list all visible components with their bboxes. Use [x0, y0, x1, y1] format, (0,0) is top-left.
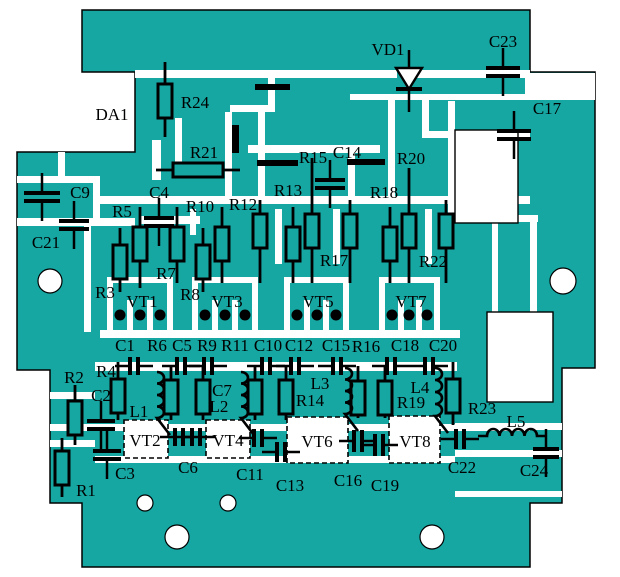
trace-channel [422, 94, 530, 100]
trace-channel [167, 283, 173, 330]
capacitor-symbol [331, 357, 335, 375]
resistor-symbol [55, 451, 69, 485]
capacitor-symbol [93, 449, 121, 453]
mounting-hole [420, 525, 444, 549]
label-L2: L2 [210, 397, 229, 416]
label-R14: R14 [296, 391, 325, 410]
resistor-symbol [279, 380, 293, 414]
capacitor-symbol [87, 419, 115, 423]
resistor-symbol [305, 214, 319, 248]
resistor-symbol [439, 214, 453, 248]
resistor-symbol [170, 227, 184, 261]
capacitor-symbol [202, 357, 206, 375]
transistor-pad-dot [312, 310, 323, 321]
capacitor-symbol [24, 191, 60, 195]
resistor-symbol [133, 227, 147, 261]
capacitor-symbol [93, 457, 121, 461]
label-DA1: DA1 [95, 105, 128, 124]
capacitor-symbol [175, 357, 179, 375]
capacitor-symbol [144, 224, 174, 228]
label-R6: R6 [147, 336, 167, 355]
capacitor-symbol [59, 219, 89, 223]
label-C10: C10 [254, 336, 282, 355]
capacitor-symbol [268, 357, 272, 375]
label-L5: L5 [507, 412, 526, 431]
pcb-layout-diagram: DA1R24VD1C23C17R21R15C14R20R13R18C9C4R5R… [0, 0, 620, 577]
resistor-symbol [215, 227, 229, 261]
capacitor-symbol [393, 357, 397, 375]
trace-channel [379, 283, 385, 330]
label-C18: C18 [391, 336, 419, 355]
label-R10: R10 [186, 197, 214, 216]
trace-channel [175, 118, 182, 163]
capacitor-symbol [198, 428, 202, 446]
capacitor-symbol [385, 357, 389, 375]
transistor-pad-dot [135, 310, 146, 321]
label-R11: R11 [221, 336, 249, 355]
transistor-pad-dot [200, 310, 211, 321]
trace-channel [50, 392, 95, 399]
trace-channel [455, 491, 562, 497]
label-C19: C19 [371, 476, 399, 495]
label-VT7: VT7 [395, 292, 427, 311]
trace-channel [17, 176, 93, 183]
label-R22: R22 [419, 252, 447, 271]
trace-channel [230, 105, 275, 112]
transistor-pad-dot [220, 310, 231, 321]
capacitor-symbol [486, 66, 520, 70]
pcb-board-svg: DA1R24VD1C23C17R21R15C14R20R13R18C9C4R5R… [0, 0, 620, 577]
label-R15: R15 [299, 148, 327, 167]
capacitor-symbol [431, 357, 435, 375]
mounting-hole [165, 525, 189, 549]
capacitor-symbol [462, 429, 466, 449]
label-C23: C23 [489, 32, 517, 51]
label-C13: C13 [276, 476, 304, 495]
capacitor-symbol [381, 434, 385, 456]
capacitor-symbol [297, 357, 301, 375]
capacitor-symbol [210, 357, 214, 375]
resistor-symbol [164, 380, 178, 414]
label-C6: C6 [178, 458, 198, 477]
trace-channel [275, 209, 282, 264]
label-R16: R16 [352, 337, 380, 356]
trace-channel [343, 283, 349, 330]
resistor-symbol [286, 227, 300, 261]
resistor-symbol [383, 227, 397, 261]
label-C3: C3 [115, 464, 135, 483]
capacitor-symbol [275, 442, 279, 462]
label-R19: R19 [397, 393, 425, 412]
label-R20: R20 [397, 149, 425, 168]
capacitor-symbol [423, 357, 427, 375]
transistor-pad-dot [331, 310, 342, 321]
capacitor-symbol [497, 137, 531, 141]
resistor-symbol [378, 381, 392, 415]
label-R8: R8 [180, 285, 200, 304]
label-C20: C20 [429, 336, 457, 355]
capacitor-symbol [315, 186, 345, 190]
transistor-pad-dot [404, 310, 415, 321]
resistor-symbol [196, 245, 210, 279]
mounting-hole [38, 269, 62, 293]
label-R9: R9 [197, 336, 217, 355]
capacitor-symbol [183, 357, 187, 375]
label-C1: C1 [115, 336, 135, 355]
label-R23: R23 [468, 399, 496, 418]
resistor-symbol [68, 401, 82, 435]
resistor-symbol [402, 214, 416, 248]
label-VT8: VT8 [399, 432, 430, 451]
label-R21: R21 [190, 143, 218, 162]
capacitor-symbol [59, 227, 89, 231]
label-VT5: VT5 [302, 292, 333, 311]
label-R17: R17 [320, 251, 349, 270]
label-R18: R18 [370, 183, 398, 202]
label-R1: R1 [76, 481, 96, 500]
capacitor-symbol [190, 428, 194, 446]
label-R4: R4 [96, 362, 116, 381]
trace-channel [492, 222, 498, 312]
label-R24: R24 [181, 93, 210, 112]
trace-channel [84, 226, 91, 332]
label-C12: C12 [285, 336, 313, 355]
label-R3: R3 [95, 283, 115, 302]
trace-channel [434, 283, 440, 330]
label-C14: C14 [333, 143, 362, 162]
transistor-pad-dot [115, 310, 126, 321]
capacitor-symbol [87, 427, 115, 431]
resistor-symbol [446, 379, 460, 413]
label-R7: R7 [156, 264, 176, 283]
capacitor-symbol [283, 442, 287, 462]
trace-channel [252, 283, 258, 330]
trace-channel [93, 176, 100, 220]
capacitor-symbol [289, 357, 293, 375]
capacitor-symbol [24, 199, 60, 203]
capacitor-symbol [173, 428, 177, 446]
capacitor-symbol [260, 357, 264, 375]
capacitor-symbol [486, 74, 520, 78]
label-C11: C11 [236, 465, 264, 484]
label-R5: R5 [112, 202, 132, 221]
trace-channel [58, 152, 65, 178]
capacitor-symbol [360, 430, 364, 452]
label-L1: L1 [130, 402, 149, 421]
capacitor-symbol [373, 434, 377, 456]
transistor-pad-dot [387, 310, 398, 321]
trace-channel [350, 94, 425, 100]
label-C21: C21 [32, 233, 60, 252]
transistor-pad-dot [155, 310, 166, 321]
mounting-hole [137, 495, 153, 511]
trace-channel [530, 222, 537, 312]
label-C17: C17 [533, 99, 562, 118]
cutout [487, 312, 553, 402]
capacitor-symbol [352, 430, 356, 452]
trace-channel [152, 140, 161, 180]
capacitor-symbol [454, 429, 458, 449]
label-VT2: VT2 [129, 431, 160, 450]
label-R12: R12 [229, 195, 257, 214]
trace-channel [258, 108, 265, 202]
label-VT1: VT1 [126, 292, 157, 311]
capacitor-symbol [128, 357, 132, 375]
resistor-symbol [196, 380, 210, 414]
resistor-symbol [113, 245, 127, 279]
label-C15: C15 [322, 336, 350, 355]
transistor-pad-dot [240, 310, 251, 321]
trace-channel [135, 70, 397, 78]
capacitor-symbol [315, 178, 345, 182]
transistor-pad-dot [422, 310, 433, 321]
label-R13: R13 [274, 181, 302, 200]
resistor-symbol [173, 163, 223, 177]
label-VT3: VT3 [211, 292, 242, 311]
capacitor-symbol [497, 129, 531, 133]
resistor-symbol [248, 380, 262, 414]
component-bar [257, 160, 298, 166]
capacitor-symbol [144, 216, 174, 220]
resistor-symbol [111, 379, 125, 413]
mounting-hole [220, 495, 236, 511]
trace-channel [225, 112, 232, 202]
trace-channel [284, 283, 290, 330]
label-C22: C22 [448, 458, 476, 477]
resistor-symbol [158, 84, 172, 118]
diode-cathode-bar [396, 87, 422, 91]
trace-channel [50, 440, 95, 447]
trace-channel [268, 78, 275, 108]
transistor-pad-dot [292, 310, 303, 321]
capacitor-symbol [533, 447, 559, 451]
label-C5: C5 [172, 336, 192, 355]
capacitor-symbol [339, 357, 343, 375]
resistor-symbol [253, 214, 267, 248]
mounting-hole [550, 268, 576, 294]
cutout [455, 130, 518, 223]
label-C4: C4 [149, 183, 169, 202]
component-bar [232, 125, 239, 153]
capacitor-symbol [136, 357, 140, 375]
no-copper-zone [525, 73, 595, 100]
capacitor-symbol [533, 455, 559, 459]
label-C24: C24 [520, 461, 549, 480]
label-VT4: VT4 [212, 431, 244, 450]
capacitor-symbol [260, 429, 264, 447]
resistor-symbol [343, 214, 357, 248]
label-C9: C9 [70, 183, 90, 202]
label-VT6: VT6 [301, 432, 332, 451]
label-R2: R2 [64, 368, 84, 387]
label-C16: C16 [334, 471, 362, 490]
component-bar [255, 84, 290, 90]
label-C2: C2 [91, 386, 111, 405]
label-VD1: VD1 [371, 40, 404, 59]
